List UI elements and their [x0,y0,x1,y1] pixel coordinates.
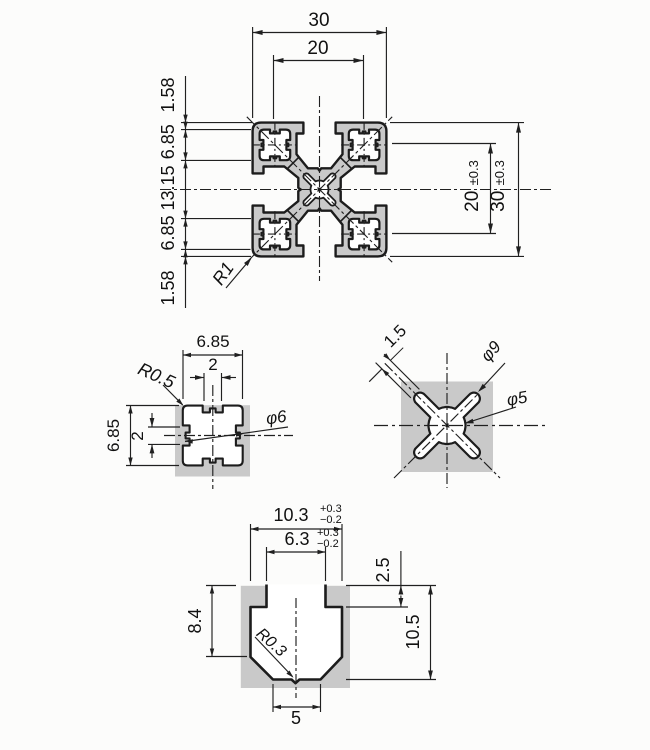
svg-text:6.85: 6.85 [196,332,229,351]
svg-text:2.5: 2.5 [373,557,393,582]
svg-text:−0.2: −0.2 [320,514,342,526]
svg-text:20 ±0.3: 20 ±0.3 [462,160,483,212]
svg-text:20: 20 [307,38,328,59]
svg-text:13.15: 13.15 [158,165,178,210]
svg-text:30: 30 [308,10,329,31]
svg-text:10.5: 10.5 [403,614,423,649]
svg-text:φ5: φ5 [505,387,529,409]
svg-text:−0.2: −0.2 [317,538,339,550]
svg-text:10.3: 10.3 [273,505,308,525]
svg-text:6.85: 6.85 [104,419,123,452]
svg-text:2: 2 [208,355,217,374]
svg-text:30 ±0.3: 30 ±0.3 [488,160,509,212]
svg-text:1.58: 1.58 [158,270,178,305]
svg-text:6.85: 6.85 [158,215,178,250]
svg-text:2: 2 [128,431,147,440]
svg-text:1.58: 1.58 [158,77,178,112]
svg-text:5: 5 [291,708,301,728]
svg-text:6.3: 6.3 [284,529,309,549]
svg-text:φ6: φ6 [265,407,289,429]
svg-text:8.4: 8.4 [185,608,205,633]
svg-text:6.85: 6.85 [158,124,178,159]
